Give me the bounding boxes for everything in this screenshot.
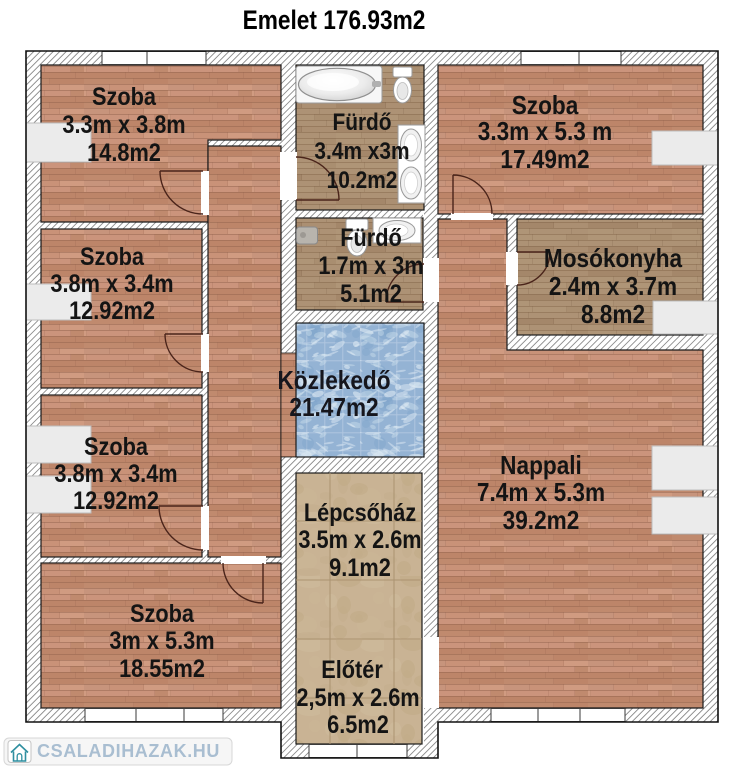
- svg-text:Előtér: Előtér: [321, 656, 383, 684]
- svg-text:21.47m2: 21.47m2: [289, 394, 378, 423]
- svg-text:1.7m x 3m: 1.7m x 3m: [318, 252, 423, 280]
- svg-text:Szoba: Szoba: [80, 243, 145, 271]
- svg-text:3.3m x 5.3 m: 3.3m x 5.3 m: [478, 118, 613, 147]
- svg-text:39.2m2: 39.2m2: [503, 507, 580, 536]
- svg-text:5.1m2: 5.1m2: [340, 280, 402, 308]
- svg-text:Lépcsőház: Lépcsőház: [304, 499, 416, 527]
- svg-text:8.8m2: 8.8m2: [581, 301, 645, 330]
- svg-text:Fürdő: Fürdő: [340, 224, 402, 252]
- svg-text:18.55m2: 18.55m2: [119, 655, 205, 683]
- svg-text:Szoba: Szoba: [130, 600, 195, 628]
- svg-text:9.1m2: 9.1m2: [329, 554, 391, 582]
- svg-text:3m x 5.3m: 3m x 5.3m: [109, 627, 214, 655]
- svg-text:2.4m x 3.7m: 2.4m x 3.7m: [549, 273, 677, 302]
- svg-text:Szoba: Szoba: [92, 83, 157, 111]
- svg-text:6.5m2: 6.5m2: [327, 711, 389, 739]
- svg-text:Mosókonyha: Mosókonyha: [544, 245, 683, 274]
- svg-text:Szoba: Szoba: [512, 92, 579, 121]
- svg-text:17.49m2: 17.49m2: [500, 146, 589, 175]
- svg-text:Emelet 176.93m2: Emelet 176.93m2: [243, 5, 426, 35]
- svg-text:12.92m2: 12.92m2: [73, 487, 159, 515]
- svg-text:3.3m x 3.8m: 3.3m x 3.8m: [62, 111, 185, 139]
- svg-text:10.2m2: 10.2m2: [327, 167, 398, 194]
- svg-text:2,5m x 2.6m: 2,5m x 2.6m: [296, 684, 419, 712]
- svg-text:3.8m x 3.4m: 3.8m x 3.4m: [54, 460, 177, 488]
- svg-text:Fürdő: Fürdő: [332, 109, 391, 136]
- svg-text:14.8m2: 14.8m2: [87, 139, 161, 167]
- svg-text:12.92m2: 12.92m2: [69, 297, 155, 325]
- svg-text:Szoba: Szoba: [84, 433, 149, 461]
- svg-text:7.4m x 5.3m: 7.4m x 5.3m: [477, 479, 605, 508]
- svg-text:3.5m x 2.6m: 3.5m x 2.6m: [298, 526, 421, 554]
- svg-text:Közlekedő: Közlekedő: [277, 367, 390, 396]
- svg-text:3.8m x 3.4m: 3.8m x 3.4m: [50, 270, 173, 298]
- svg-text:3.4m x3m: 3.4m x3m: [314, 138, 409, 165]
- svg-text:Nappali: Nappali: [500, 452, 582, 481]
- svg-text:CSALADIHAZAK.HU: CSALADIHAZAK.HU: [37, 741, 220, 761]
